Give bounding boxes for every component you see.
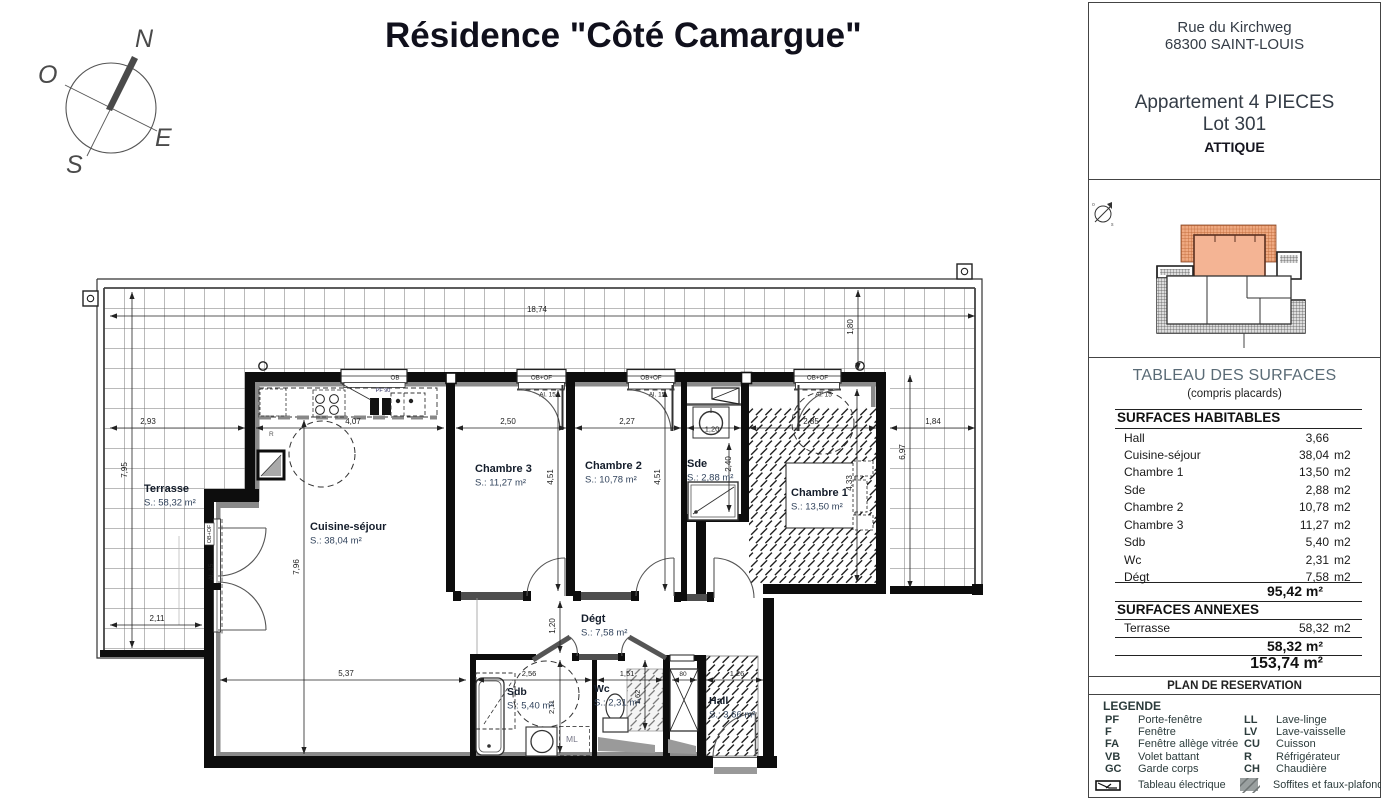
svg-text:Sdb: Sdb xyxy=(507,686,527,698)
svg-text:S.: 2,31 m²: S.: 2,31 m² xyxy=(594,698,640,709)
svg-text:4,51: 4,51 xyxy=(546,469,555,485)
svg-text:N: N xyxy=(135,25,154,53)
svg-text:18,74: 18,74 xyxy=(527,305,548,314)
svg-text:Cuisine-séjour: Cuisine-séjour xyxy=(310,521,387,533)
svg-text:Chambre 1: Chambre 1 xyxy=(791,487,848,499)
svg-text:1,20: 1,20 xyxy=(705,425,720,434)
svg-text:Sde: Sde xyxy=(687,458,707,470)
svg-text:80: 80 xyxy=(679,671,687,678)
svg-text:E: E xyxy=(155,124,172,152)
svg-text:2,93: 2,93 xyxy=(140,417,156,426)
svg-text:S.: 7,58 m²: S.: 7,58 m² xyxy=(581,628,627,639)
svg-text:O: O xyxy=(38,61,57,89)
svg-text:OB+OF: OB+OF xyxy=(531,375,552,382)
svg-text:Chambre 3: Chambre 3 xyxy=(475,463,532,475)
svg-text:S.: 11,27 m²: S.: 11,27 m² xyxy=(475,478,526,489)
svg-text:1,26: 1,26 xyxy=(730,669,745,678)
svg-text:S.: 3,66 m²: S.: 3,66 m² xyxy=(709,710,755,721)
svg-text:1,84: 1,84 xyxy=(925,417,941,426)
svg-text:2,27: 2,27 xyxy=(619,417,635,426)
svg-text:Terrasse: Terrasse xyxy=(144,483,189,495)
svg-text:S.: 5,40 m²: S.: 5,40 m² xyxy=(507,701,553,712)
svg-text:4,51: 4,51 xyxy=(653,469,662,485)
svg-text:Hall: Hall xyxy=(709,695,728,707)
svg-text:S: S xyxy=(66,151,83,179)
svg-text:S.: 58,32 m²: S.: 58,32 m² xyxy=(144,498,196,509)
svg-text:2,56: 2,56 xyxy=(522,669,537,678)
svg-text:Wc: Wc xyxy=(594,683,610,695)
svg-text:4,07: 4,07 xyxy=(345,417,361,426)
svg-text:7,96: 7,96 xyxy=(292,559,301,575)
svg-text:2,50: 2,50 xyxy=(500,417,516,426)
svg-text:1,20: 1,20 xyxy=(548,618,557,634)
svg-text:OB: OB xyxy=(391,375,400,382)
svg-text:S.: 13,50 m²: S.: 13,50 m² xyxy=(791,502,843,513)
svg-text:2,85: 2,85 xyxy=(803,417,819,426)
svg-text:5,37: 5,37 xyxy=(338,669,354,678)
svg-text:1,80: 1,80 xyxy=(846,319,855,335)
svg-text:ML: ML xyxy=(566,734,578,744)
svg-text:Al. 15: Al. 15 xyxy=(208,563,215,580)
svg-text:R: R xyxy=(269,431,274,438)
svg-text:Dégt: Dégt xyxy=(581,613,606,625)
svg-text:2,11: 2,11 xyxy=(150,614,166,623)
svg-text:OB+OF: OB+OF xyxy=(207,524,213,543)
svg-text:S.: 10,78 m²: S.: 10,78 m² xyxy=(585,475,637,486)
svg-text:OB+OF: OB+OF xyxy=(807,375,828,382)
svg-text:S.: 2,88 m²: S.: 2,88 m² xyxy=(687,473,733,484)
svg-text:S.: 38,04 m²: S.: 38,04 m² xyxy=(310,536,362,547)
svg-text:Chambre 2: Chambre 2 xyxy=(585,460,642,472)
svg-text:7,95: 7,95 xyxy=(120,462,129,478)
svg-text:OB+OF: OB+OF xyxy=(640,375,661,382)
svg-text:Al. 15: Al. 15 xyxy=(539,392,556,399)
svg-text:6,97: 6,97 xyxy=(898,444,907,460)
svg-text:PF 90: PF 90 xyxy=(376,388,391,394)
svg-text:2,40: 2,40 xyxy=(724,456,733,472)
svg-text:1,51: 1,51 xyxy=(620,669,635,678)
